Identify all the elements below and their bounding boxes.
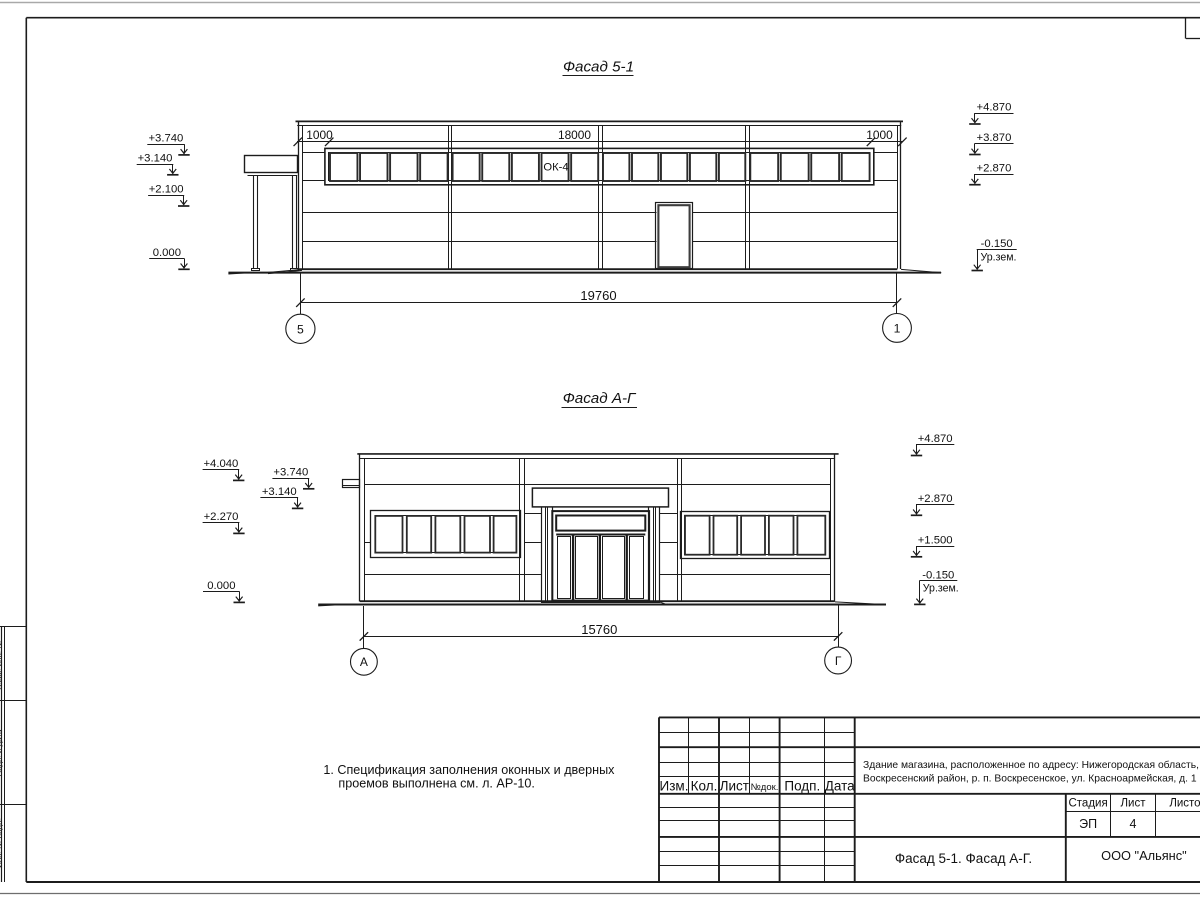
- svg-text:+3.740: +3.740: [273, 467, 308, 479]
- svg-text:+4.870: +4.870: [918, 433, 953, 445]
- svg-text:5: 5: [297, 322, 304, 336]
- svg-text:+4.870: +4.870: [977, 102, 1012, 114]
- svg-text:1. Спецификация заполнения око: 1. Спецификация заполнения оконных и две…: [323, 763, 615, 777]
- svg-text:1000: 1000: [866, 128, 893, 142]
- svg-text:+2.270: +2.270: [204, 511, 239, 523]
- svg-text:Взам. инв. №: Взам. инв. №: [0, 640, 3, 690]
- svg-text:+2.100: +2.100: [149, 184, 184, 196]
- svg-text:Подп.: Подп.: [784, 779, 820, 794]
- svg-text:0.000: 0.000: [153, 247, 181, 259]
- svg-text:ОК-4: ОК-4: [543, 162, 568, 174]
- svg-text:18000: 18000: [558, 128, 591, 142]
- svg-text:+3.140: +3.140: [138, 153, 173, 165]
- svg-text:Подп. и дата: Подп. и дата: [0, 729, 3, 777]
- svg-text:№док.: №док.: [751, 782, 779, 793]
- svg-text:15760: 15760: [581, 622, 617, 637]
- svg-text:Фасад 5-1: Фасад 5-1: [563, 59, 634, 76]
- svg-text:Ур.зем.: Ур.зем.: [981, 251, 1017, 263]
- svg-text:1000: 1000: [306, 128, 333, 142]
- svg-text:19760: 19760: [580, 288, 616, 303]
- svg-text:Листов: Листов: [1169, 798, 1200, 810]
- svg-text:Лист: Лист: [720, 779, 749, 794]
- svg-text:Инв. № подл.: Инв. № подл.: [0, 818, 3, 868]
- svg-text:Фасад 5-1. Фасад А-Г.: Фасад 5-1. Фасад А-Г.: [895, 851, 1032, 866]
- svg-text:Ур.зем.: Ур.зем.: [923, 583, 959, 595]
- svg-text:1: 1: [894, 321, 901, 335]
- svg-text:Лист: Лист: [1121, 798, 1147, 810]
- svg-text:+3.870: +3.870: [977, 132, 1012, 144]
- svg-text:+2.870: +2.870: [977, 162, 1012, 174]
- svg-text:4: 4: [1130, 817, 1137, 831]
- svg-text:Фасад А-Г: Фасад А-Г: [563, 390, 637, 407]
- svg-text:ЭП: ЭП: [1079, 817, 1097, 831]
- svg-text:+3.140: +3.140: [262, 486, 297, 498]
- svg-text:Здание магазина, расположенное: Здание магазина, расположенное по адресу…: [863, 759, 1199, 771]
- svg-text:Стадия: Стадия: [1068, 798, 1107, 810]
- svg-text:-0.150: -0.150: [922, 569, 954, 581]
- svg-text:А: А: [360, 655, 368, 669]
- svg-text:+3.740: +3.740: [148, 133, 183, 145]
- svg-text:+2.870: +2.870: [918, 493, 953, 505]
- svg-text:Изм.: Изм.: [660, 779, 689, 794]
- svg-text:+4.040: +4.040: [203, 458, 238, 470]
- svg-text:Дата: Дата: [825, 779, 855, 794]
- svg-text:-0.150: -0.150: [981, 238, 1013, 250]
- svg-text:ООО "Альянс": ООО "Альянс": [1101, 848, 1187, 863]
- svg-text:Воскресенский район, р. п. Вос: Воскресенский район, р. п. Воскресенское…: [863, 773, 1197, 784]
- svg-text:проемов выполнена см. л. АР-10: проемов выполнена см. л. АР-10.: [338, 776, 535, 790]
- svg-text:+1.500: +1.500: [918, 535, 953, 547]
- svg-text:Кол.: Кол.: [691, 779, 718, 794]
- svg-text:Г: Г: [835, 654, 842, 668]
- svg-text:0.000: 0.000: [207, 580, 235, 592]
